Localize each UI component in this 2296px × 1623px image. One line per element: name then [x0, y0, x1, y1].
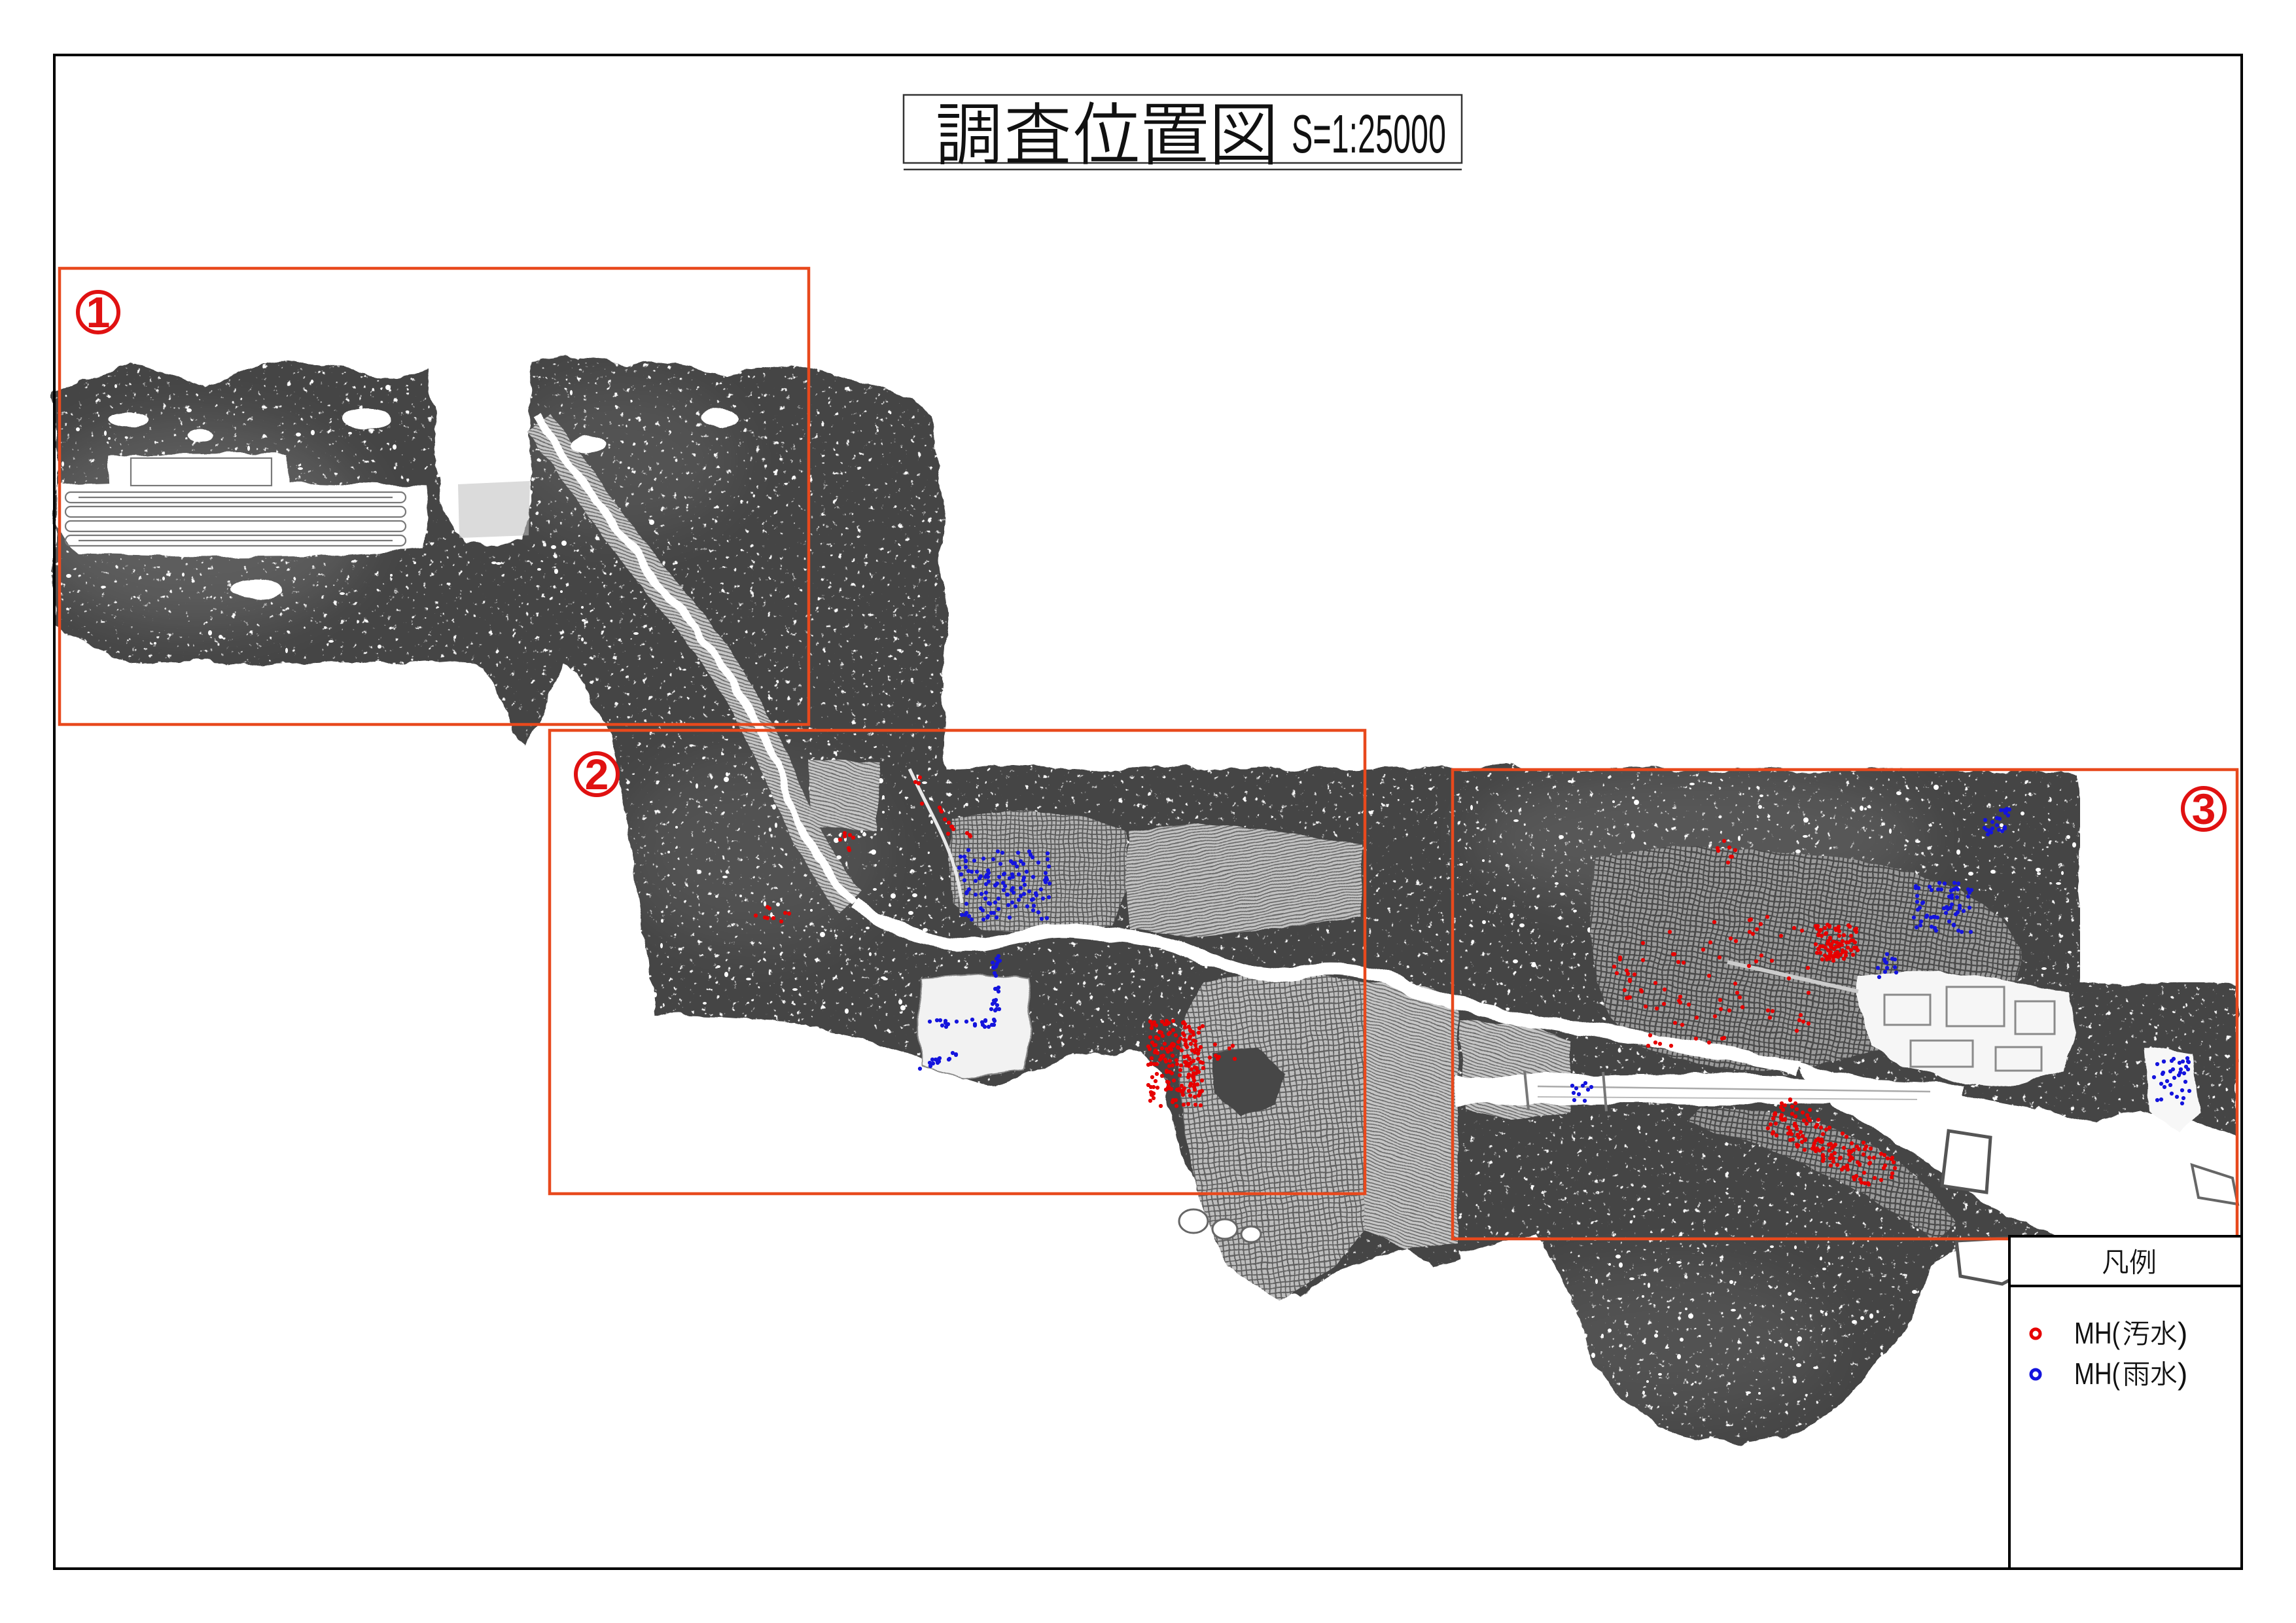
svg-text:3: 3	[2192, 785, 2216, 833]
svg-text:MH(: MH(	[2074, 1357, 2121, 1391]
svg-text:): )	[2178, 1316, 2187, 1350]
svg-text:1: 1	[86, 288, 111, 336]
svg-text:MH(: MH(	[2074, 1316, 2121, 1350]
svg-text:2: 2	[585, 750, 609, 798]
svg-text:): )	[2178, 1357, 2187, 1391]
svg-text:S=1:25000: S=1:25000	[1292, 103, 1446, 164]
